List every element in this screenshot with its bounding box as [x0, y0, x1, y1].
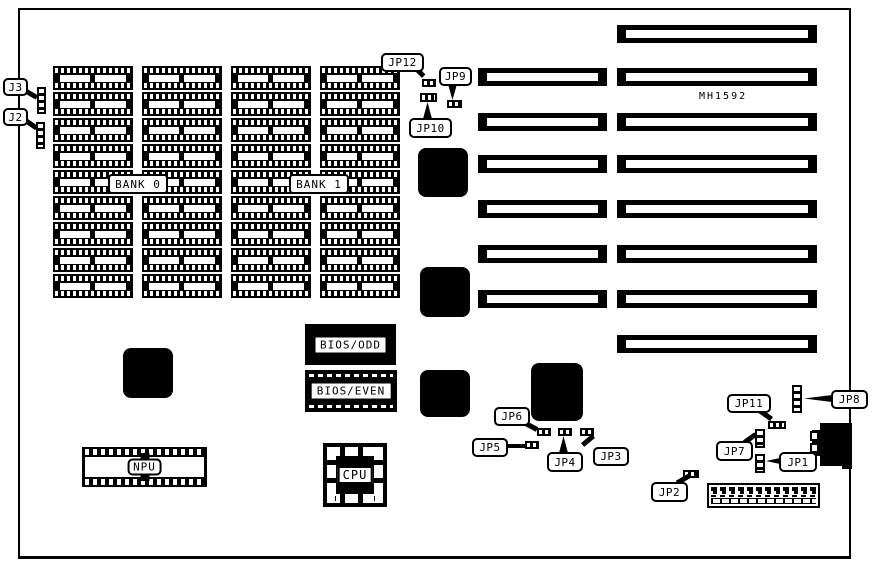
expansion-slot-long — [617, 68, 817, 86]
chip-upper — [418, 148, 468, 197]
memory-socket — [53, 222, 133, 246]
memory-socket — [53, 144, 133, 168]
memory-socket — [231, 274, 311, 298]
jp5-jumper-pins — [525, 441, 539, 449]
memory-socket — [53, 118, 133, 142]
memory-socket — [53, 248, 133, 272]
memory-socket — [320, 118, 400, 142]
callout-jp2: JP2 — [651, 482, 688, 502]
memory-socket — [142, 248, 222, 272]
expansion-slot-short — [478, 113, 607, 131]
keyboard-connector-foot — [842, 464, 852, 469]
memory-socket — [320, 222, 400, 246]
jp7-jumper-pins — [755, 429, 765, 448]
bios-even-label: BIOS/EVEN — [310, 382, 393, 401]
callout-jp3: JP3 — [593, 447, 629, 466]
memory-socket — [142, 144, 222, 168]
expansion-slot-long — [617, 200, 817, 218]
callout-j3: J3 — [3, 78, 28, 96]
bios-odd-chip: BIOS/ODD — [305, 324, 396, 365]
power-pin-dashes — [711, 495, 816, 497]
callout-jp10: JP10 — [409, 118, 452, 138]
memory-socket — [142, 92, 222, 116]
memory-socket — [53, 66, 133, 90]
memory-socket — [231, 118, 311, 142]
jp4-jumper-pins — [558, 428, 572, 436]
memory-socket — [231, 66, 311, 90]
jp11-jumper-pins — [768, 421, 786, 429]
expansion-slot-long — [617, 290, 817, 308]
memory-socket — [142, 222, 222, 246]
memory-socket — [231, 222, 311, 246]
callout-jp1: JP1 — [779, 452, 817, 472]
memory-socket — [53, 92, 133, 116]
expansion-slot-long — [617, 25, 817, 43]
keyboard-connector-body — [820, 423, 852, 466]
keyboard-connector-pin-box-1 — [810, 431, 819, 441]
callout-jp11: JP11 — [727, 394, 771, 413]
power-connector — [707, 483, 820, 508]
j3-jumper-pins — [37, 87, 46, 114]
callout-jp5: JP5 — [472, 438, 508, 457]
expansion-slot-short — [478, 68, 607, 86]
memory-socket — [142, 274, 222, 298]
memory-socket — [142, 118, 222, 142]
callout-j2: J2 — [3, 108, 28, 126]
callout-jp4: JP4 — [547, 452, 583, 472]
callout-jp12: JP12 — [381, 53, 424, 72]
memory-socket — [231, 248, 311, 272]
callout-jp7: JP7 — [716, 441, 753, 461]
expansion-slot-long — [617, 155, 817, 173]
callout-tail-jp5 — [505, 444, 525, 448]
callout-jp8: JP8 — [831, 390, 868, 409]
callout-jp6: JP6 — [494, 407, 530, 426]
cpu-corner-bl — [327, 495, 335, 503]
expansion-slot-short — [478, 245, 607, 263]
memory-socket — [231, 144, 311, 168]
bios-even-chip: BIOS/EVEN — [305, 370, 397, 412]
memory-socket — [320, 92, 400, 116]
npu-socket: NPU — [82, 447, 207, 487]
expansion-slot-long — [617, 113, 817, 131]
expansion-slot-long — [617, 245, 817, 263]
memory-socket — [320, 196, 400, 220]
motherboard-diagram: BANK 0 BANK 1 MH1592 BIOS/ODD BIOS/EVEN … — [0, 0, 874, 566]
callout-jp9: JP9 — [439, 67, 472, 86]
expansion-slot-long — [617, 335, 817, 353]
jp8-jumper-pins — [792, 385, 802, 413]
expansion-slot-short — [478, 290, 607, 308]
power-pin-stems — [711, 491, 816, 494]
bank0-label: BANK 0 — [108, 174, 168, 194]
jp10-jumper-pins — [420, 93, 437, 102]
memory-socket — [142, 196, 222, 220]
memory-socket — [320, 274, 400, 298]
jp12-jumper-pins — [422, 79, 436, 87]
memory-socket — [231, 92, 311, 116]
bios-odd-label: BIOS/ODD — [313, 335, 388, 354]
chip-middle — [420, 267, 470, 317]
cpu-socket: CPU — [323, 443, 387, 507]
chip-left — [123, 348, 173, 398]
jp9-jumper-pins — [447, 100, 462, 108]
chip-center — [531, 363, 583, 421]
memory-socket — [142, 66, 222, 90]
cpu-label: CPU — [338, 466, 373, 484]
npu-label: NPU — [127, 459, 162, 476]
memory-socket — [53, 274, 133, 298]
expansion-slot-short — [478, 200, 607, 218]
memory-socket — [320, 144, 400, 168]
jp1-jumper-pins — [755, 454, 765, 473]
bank1-label: BANK 1 — [289, 174, 349, 194]
expansion-slot-short — [478, 155, 607, 173]
power-pin-holes — [711, 498, 816, 504]
memory-socket — [53, 196, 133, 220]
cpu-corner-br — [375, 495, 383, 503]
memory-socket — [320, 248, 400, 272]
jp6-jumper-pins — [537, 428, 551, 436]
chip-lower — [420, 370, 470, 417]
memory-socket — [231, 196, 311, 220]
model-number-label: MH1592 — [699, 91, 747, 102]
